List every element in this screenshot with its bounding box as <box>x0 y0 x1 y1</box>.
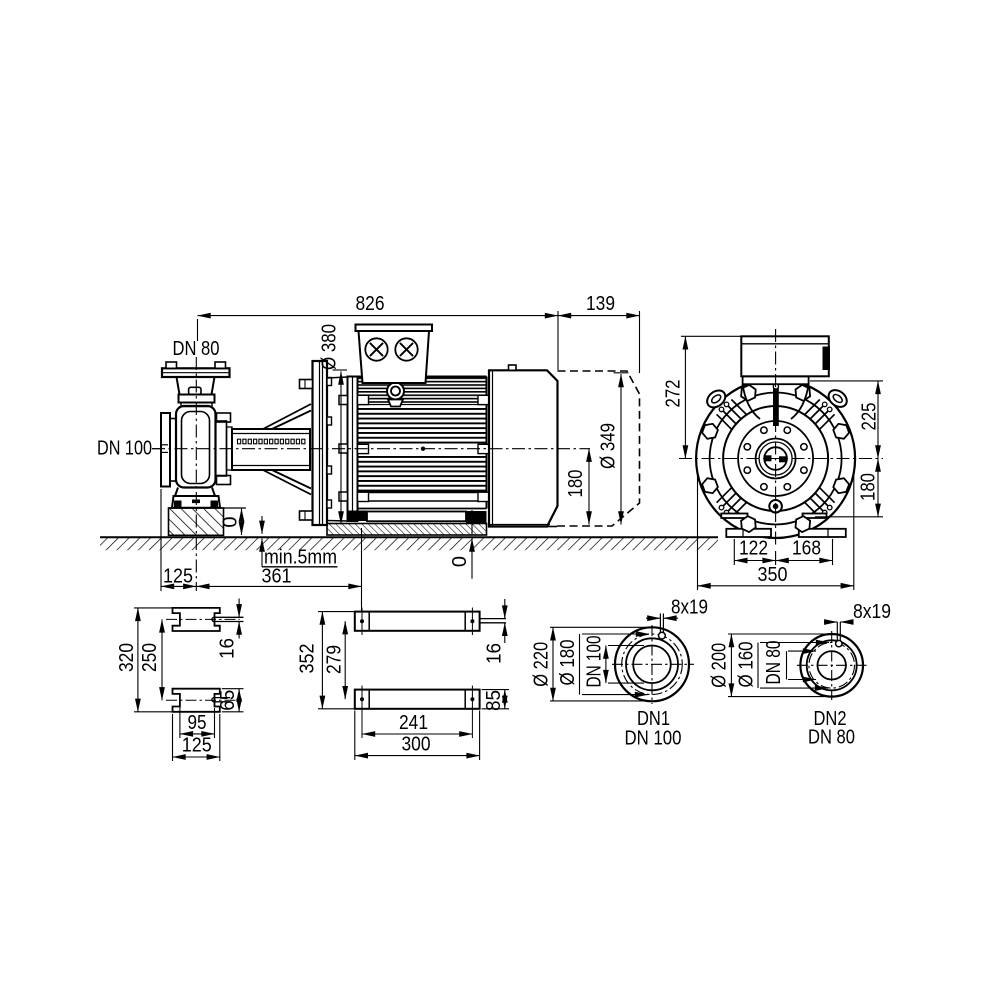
svg-text:826: 826 <box>356 293 385 315</box>
svg-text:350: 350 <box>758 564 788 586</box>
svg-text:Ø 160: Ø 160 <box>736 642 758 688</box>
svg-text:272: 272 <box>663 380 685 408</box>
svg-text:139: 139 <box>586 293 615 315</box>
svg-text:225: 225 <box>859 403 881 431</box>
svg-text:279: 279 <box>324 645 346 674</box>
svg-text:Ø 380: Ø 380 <box>319 324 341 370</box>
svg-text:Ø 349: Ø 349 <box>598 423 620 469</box>
svg-text:180: 180 <box>565 470 587 498</box>
svg-text:122: 122 <box>739 537 768 559</box>
svg-text:DN 100: DN 100 <box>584 636 606 688</box>
svg-text:DN 100: DN 100 <box>625 728 682 750</box>
svg-text:85: 85 <box>483 690 505 711</box>
svg-text:DN 80: DN 80 <box>808 727 855 749</box>
svg-text:8x19: 8x19 <box>853 601 891 623</box>
svg-text:241: 241 <box>399 712 428 734</box>
svg-text:168: 168 <box>792 537 821 559</box>
svg-text:0: 0 <box>449 556 471 567</box>
svg-text:8x19: 8x19 <box>671 596 708 618</box>
svg-text:0: 0 <box>220 516 242 527</box>
svg-text:Ø 220: Ø 220 <box>531 642 553 687</box>
svg-text:125: 125 <box>182 734 212 756</box>
svg-text:125: 125 <box>163 565 193 587</box>
svg-text:16: 16 <box>217 638 239 659</box>
svg-text:DN 100: DN 100 <box>97 438 152 460</box>
svg-text:Ø 200: Ø 200 <box>709 643 731 688</box>
svg-text:320: 320 <box>116 643 138 672</box>
svg-text:361: 361 <box>262 565 292 587</box>
svg-text:65: 65 <box>217 690 239 711</box>
svg-text:300: 300 <box>402 733 431 755</box>
svg-text:16: 16 <box>484 643 506 664</box>
svg-text:250: 250 <box>139 643 161 672</box>
svg-text:DN 80: DN 80 <box>763 641 785 685</box>
svg-text:DN 80: DN 80 <box>173 338 220 360</box>
svg-text:352: 352 <box>297 644 319 674</box>
svg-text:180: 180 <box>858 473 880 501</box>
svg-text:Ø 180: Ø 180 <box>557 640 579 686</box>
svg-text:95: 95 <box>188 712 207 734</box>
